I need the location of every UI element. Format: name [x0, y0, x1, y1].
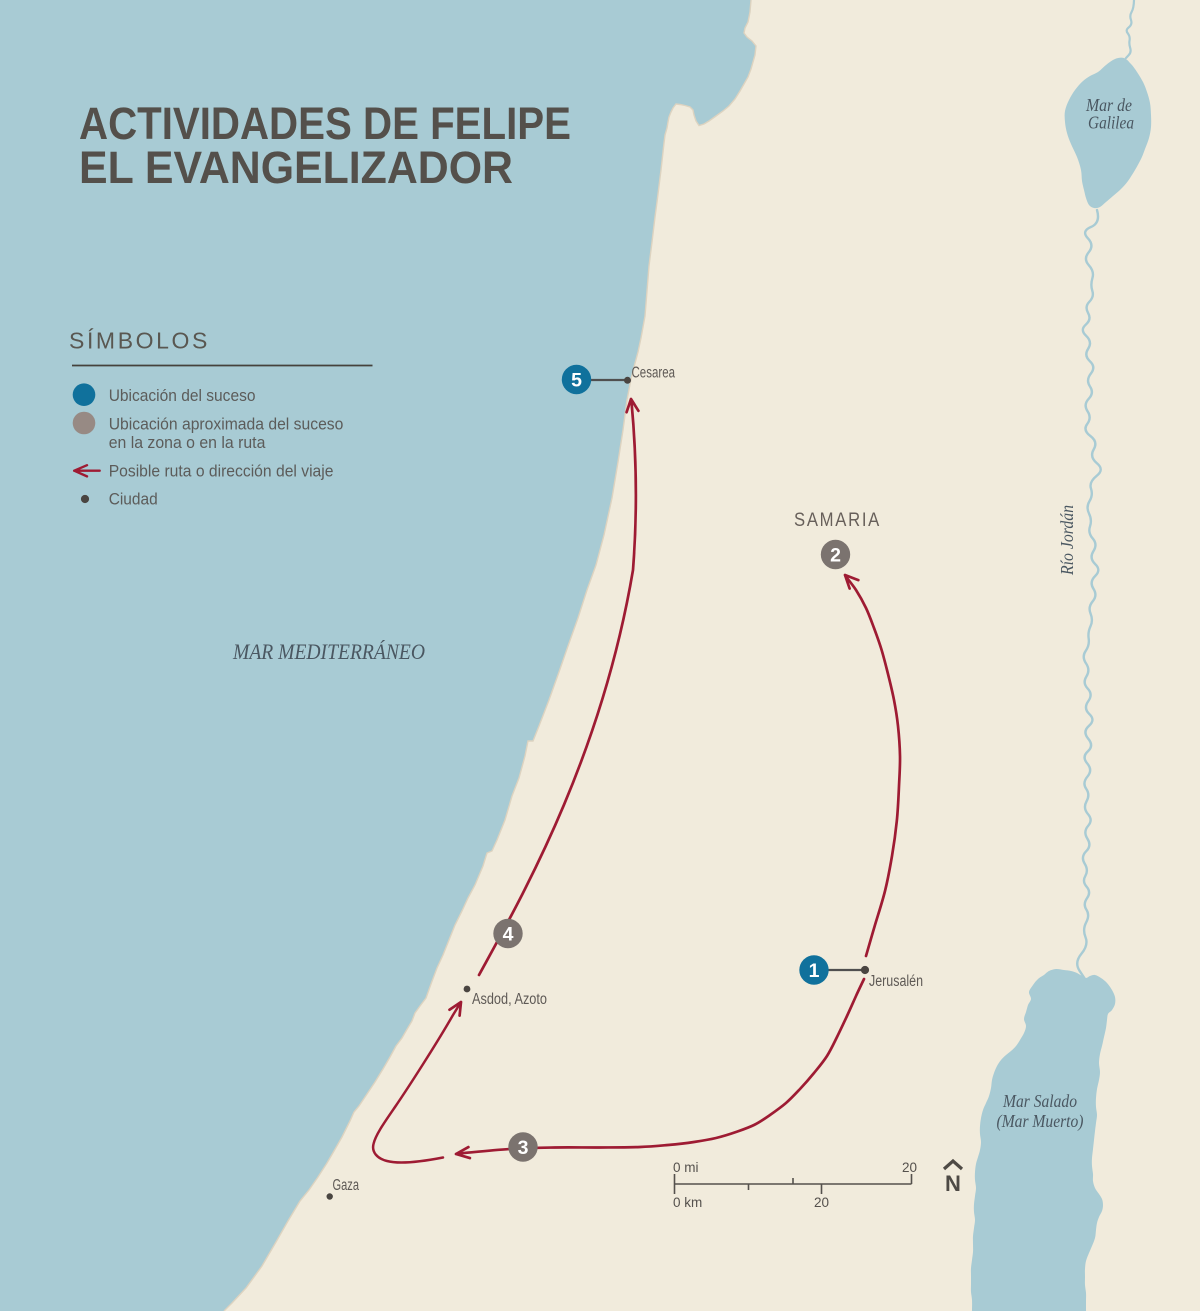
svg-text:0 mi: 0 mi: [673, 1160, 699, 1175]
svg-text:1: 1: [809, 960, 820, 982]
svg-text:Posible ruta o dirección del v: Posible ruta o dirección del viaje: [109, 462, 334, 480]
svg-text:Mar Salado: Mar Salado: [1002, 1091, 1077, 1111]
svg-text:SAMARIA: SAMARIA: [794, 509, 881, 531]
svg-text:en la zona o en la ruta: en la zona o en la ruta: [109, 434, 266, 452]
svg-text:N: N: [945, 1171, 961, 1196]
svg-text:Río Jordán: Río Jordán: [1057, 505, 1077, 576]
svg-text:Jerusalén: Jerusalén: [869, 973, 923, 990]
svg-text:20: 20: [814, 1195, 829, 1210]
svg-text:0 km: 0 km: [673, 1195, 702, 1210]
svg-text:2: 2: [830, 545, 841, 567]
svg-text:Cesarea: Cesarea: [632, 365, 676, 382]
svg-text:MAR MEDITERRÁNEO: MAR MEDITERRÁNEO: [232, 639, 425, 664]
svg-text:(Mar Muerto): (Mar Muerto): [997, 1111, 1084, 1131]
svg-text:20: 20: [902, 1160, 917, 1175]
svg-text:Galilea: Galilea: [1088, 113, 1134, 133]
svg-text:EL EVANGELIZADOR: EL EVANGELIZADOR: [79, 142, 513, 193]
svg-text:Gaza: Gaza: [333, 1177, 360, 1194]
svg-text:SÍMBOLOS: SÍMBOLOS: [69, 328, 210, 354]
svg-text:4: 4: [503, 924, 514, 946]
svg-text:3: 3: [518, 1137, 529, 1159]
svg-text:Ciudad: Ciudad: [109, 491, 158, 509]
svg-text:Ubicación del suceso: Ubicación del suceso: [109, 387, 256, 405]
svg-text:5: 5: [571, 370, 582, 392]
svg-text:Ubicación aproximada del suces: Ubicación aproximada del suceso: [109, 416, 344, 434]
svg-text:Asdod, Azoto: Asdod, Azoto: [472, 991, 547, 1008]
